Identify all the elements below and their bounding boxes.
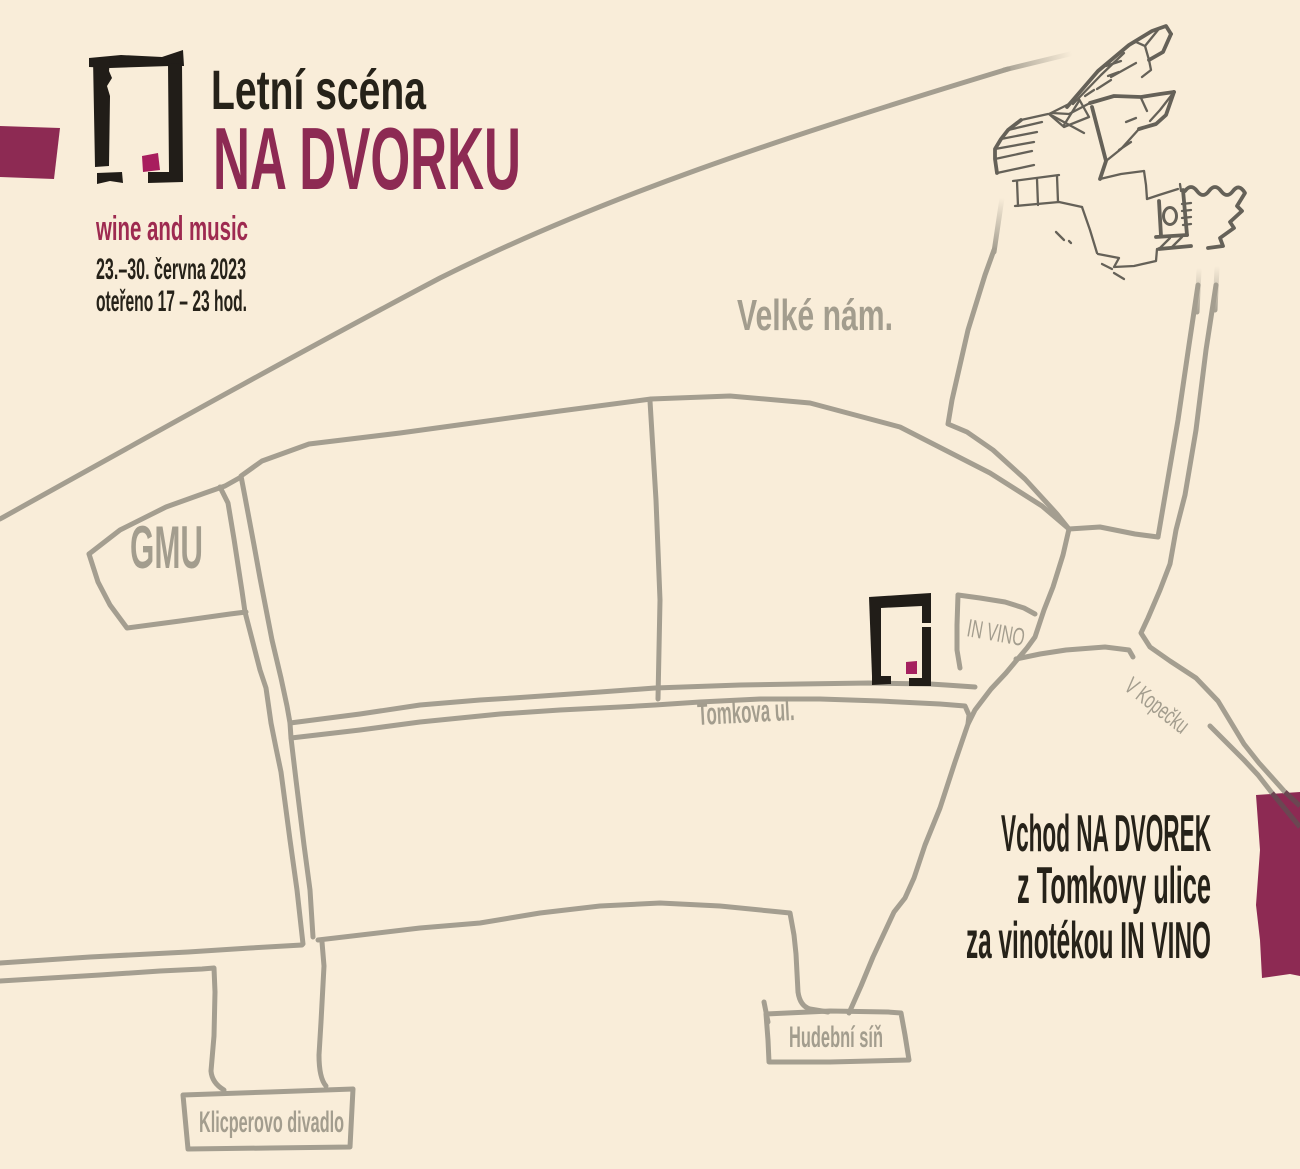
svg-text:Velké nám.: Velké nám.	[737, 291, 893, 340]
svg-text:oteřeno 17 – 23 hod.: oteřeno 17 – 23 hod.	[96, 285, 247, 318]
svg-text:z Tomkovy ulice: z Tomkovy ulice	[1017, 857, 1211, 915]
svg-text:Tomkova ul.: Tomkova ul.	[697, 692, 796, 732]
svg-text:Klicperovo divadlo: Klicperovo divadlo	[199, 1106, 344, 1139]
svg-text:wine and music: wine and music	[95, 210, 248, 248]
svg-text:NA DVORKU: NA DVORKU	[213, 109, 521, 208]
svg-text:za vinotékou IN VINO: za vinotékou IN VINO	[966, 912, 1211, 970]
svg-text:Vchod NA DVOREK: Vchod NA DVOREK	[1001, 805, 1211, 863]
svg-text:Hudební síň: Hudební síň	[789, 1021, 883, 1054]
svg-text:23.–30. června 2023: 23.–30. června 2023	[96, 253, 246, 286]
svg-text:GMU: GMU	[130, 514, 203, 581]
